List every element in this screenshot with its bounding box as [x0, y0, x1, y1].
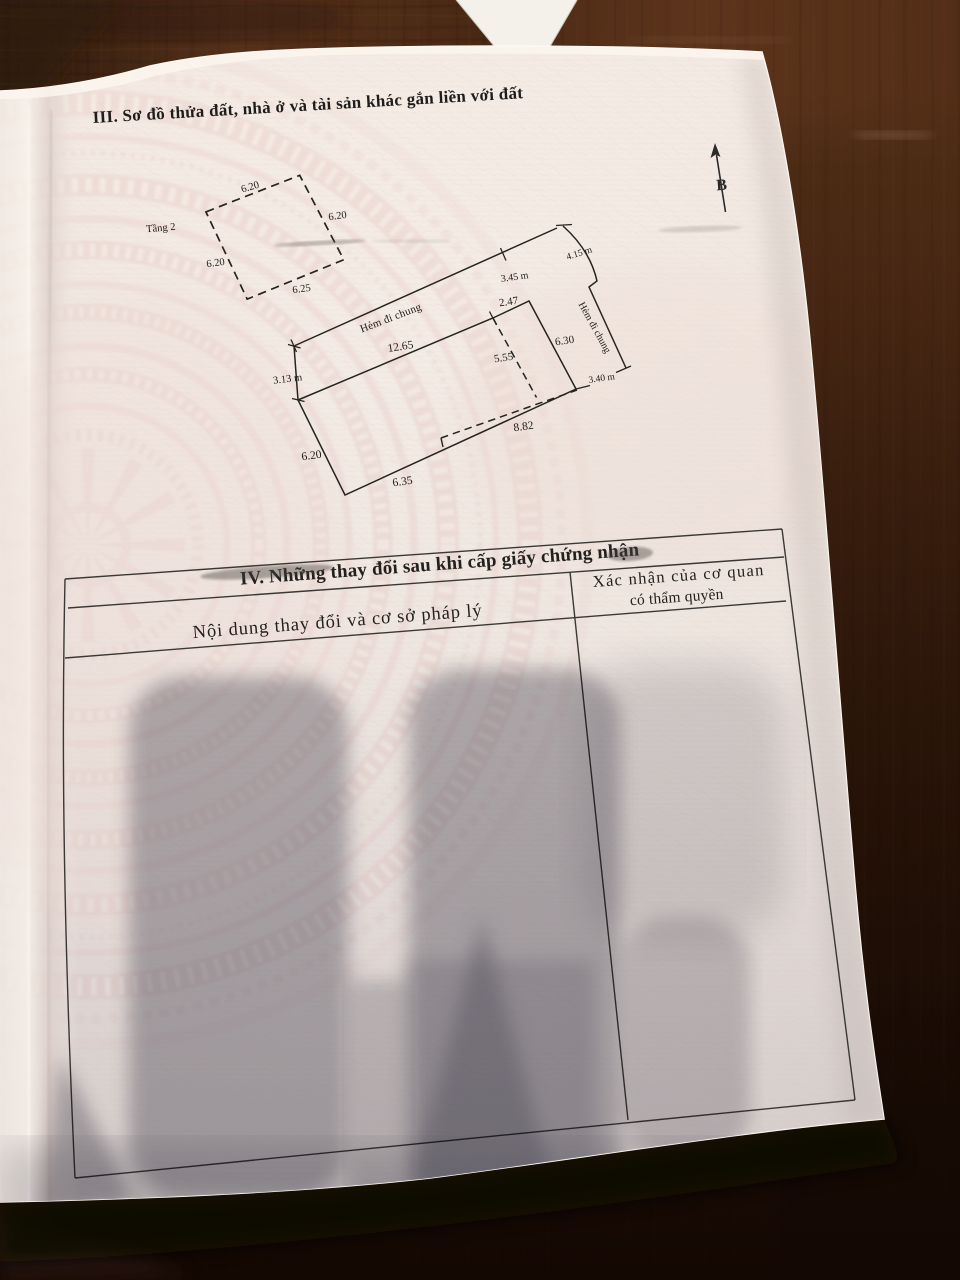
svg-text:B: B [716, 177, 728, 195]
